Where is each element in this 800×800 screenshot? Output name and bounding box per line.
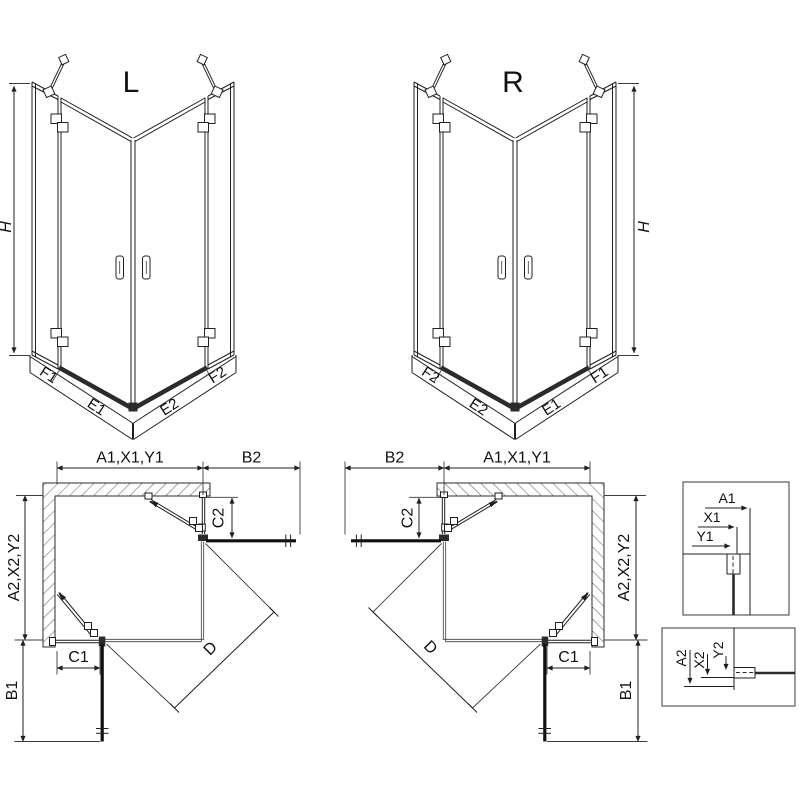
- dim-label-b2: B2: [385, 450, 405, 467]
- dim-label-e2: E2: [466, 395, 491, 419]
- dim-label-e1: E1: [84, 395, 109, 419]
- detail-label-y2: Y2: [710, 641, 726, 658]
- dim-label-f2: F2: [206, 363, 230, 387]
- dim-label-e2: E2: [157, 395, 182, 419]
- dim-label-c2: C2: [400, 508, 417, 529]
- detail-label-x2: X2: [691, 651, 707, 668]
- dim-label-a2-group: A2,X2,Y2: [6, 534, 23, 602]
- dim-label-f1: F1: [36, 363, 60, 387]
- dim-label-h: H: [0, 221, 15, 233]
- dim-label-b1: B1: [618, 681, 635, 701]
- dim-label-a1-group: A1,X1,Y1: [96, 450, 164, 467]
- dim-line-d: [175, 612, 275, 708]
- dim-label-d: D: [420, 638, 440, 658]
- dim-label-c1: C1: [68, 649, 89, 666]
- detail-box-bottom: A2 X2 Y2: [662, 628, 795, 706]
- plan-view-right: A1,X1,Y1 B2 A2,X2,Y2 B1 C2 C1 D: [345, 450, 648, 742]
- perspective-view-left: L H F1 E1 E2 F2: [0, 54, 236, 439]
- detail-label-a1: A1: [718, 490, 735, 506]
- plan-view-left: A1,X1,Y1 B2 A2,X2,Y2 B1 C2 C1 D: [4, 450, 300, 742]
- dim-label-a1-group: A1,X1,Y1: [483, 450, 551, 467]
- diagram-svg: L H F1 E1 E2 F2 R H F2 E2 E1 F1: [0, 0, 800, 800]
- detail-label-y1: Y1: [696, 528, 713, 544]
- shower-enclosure-dimension-diagram: L H F1 E1 E2 F2 R H F2 E2 E1 F1: [0, 0, 800, 800]
- dim-label-d: D: [201, 639, 221, 659]
- dim-label-a2-group: A2,X2,Y2: [616, 534, 633, 602]
- dim-label-b2: B2: [242, 450, 262, 467]
- dim-label-f1: F1: [588, 363, 612, 387]
- detail-label-x1: X1: [703, 509, 720, 525]
- view-title-right: R: [502, 66, 524, 99]
- view-title-left: L: [123, 66, 140, 99]
- dim-label-h: H: [636, 221, 653, 233]
- dim-line-d: [373, 612, 473, 708]
- perspective-view-right: R H F2 E2 E1 F1: [412, 54, 653, 439]
- detail-box-top: A1 X1 Y1: [683, 482, 789, 615]
- detail-label-a2: A2: [673, 649, 689, 666]
- dim-label-c2: C2: [211, 508, 228, 529]
- dim-label-f2: F2: [418, 363, 442, 387]
- dim-label-e1: E1: [539, 395, 564, 419]
- dim-label-c1: C1: [558, 649, 579, 666]
- dim-label-b1: B1: [4, 681, 21, 701]
